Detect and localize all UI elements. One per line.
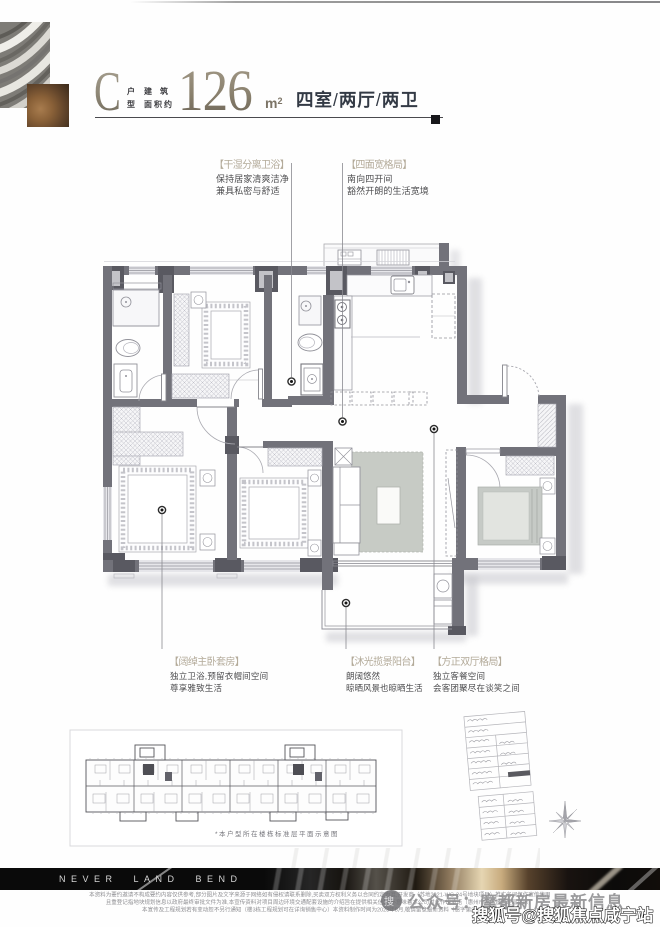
- svg-text:*本户型所在楼栋标准层平面示意图: *本户型所在楼栋标准层平面示意图: [215, 829, 339, 838]
